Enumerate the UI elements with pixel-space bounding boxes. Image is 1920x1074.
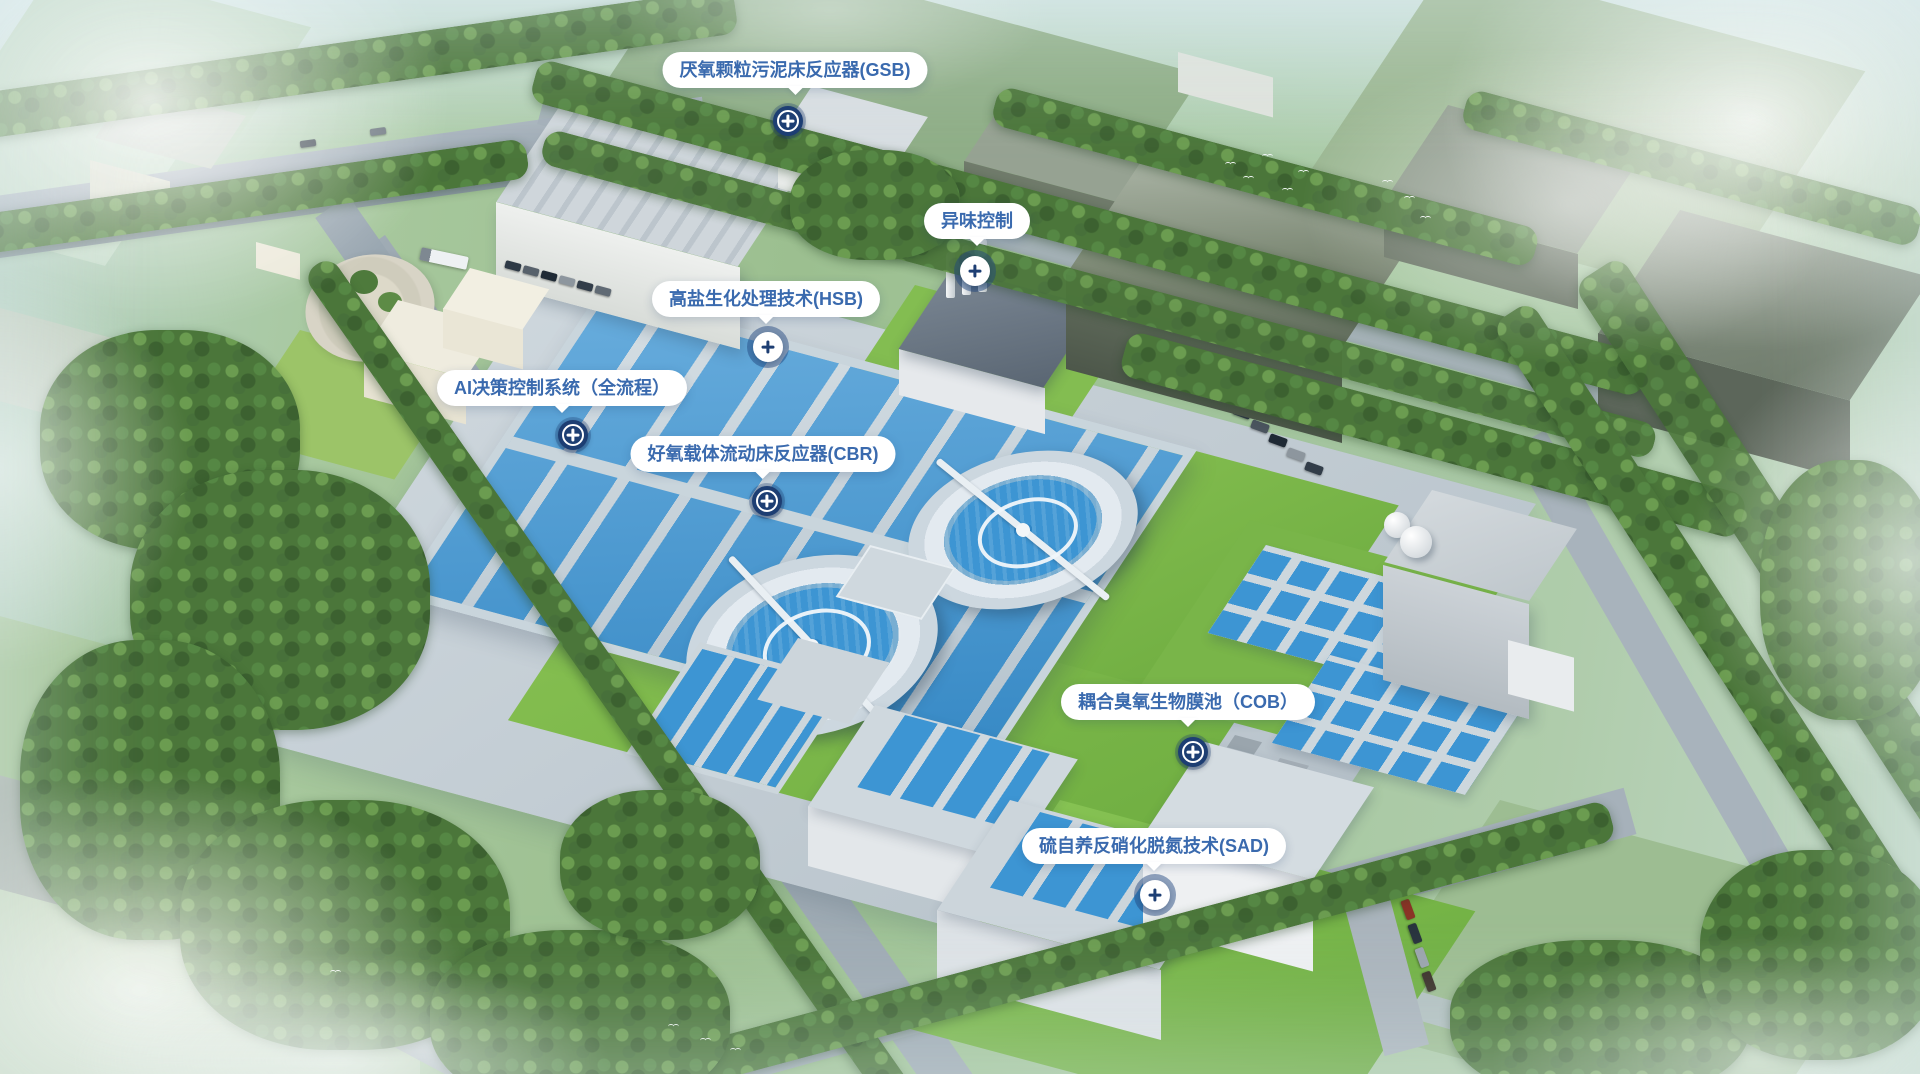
plus-marker-odor[interactable] [960, 256, 990, 286]
plus-icon [787, 115, 790, 128]
callout-gsb: 厌氧颗粒污泥床反应器(GSB) [663, 52, 928, 95]
plus-icon [572, 429, 575, 442]
plus-marker-cbr[interactable] [752, 486, 782, 516]
label-pill-cbr[interactable]: 好氧载体流动床反应器(CBR) [631, 436, 896, 472]
label-pill-odor[interactable]: 异味控制 [924, 203, 1030, 239]
label-pill-hsb[interactable]: 高盐生化处理技术(HSB) [652, 281, 880, 317]
label-pill-ai[interactable]: AI决策控制系统（全流程） [437, 370, 687, 406]
pill-pointer [1179, 718, 1197, 727]
plus-marker-cob[interactable] [1178, 737, 1208, 767]
label-pill-gsb[interactable]: 厌氧颗粒污泥床反应器(GSB) [663, 52, 928, 88]
pill-pointer [553, 404, 571, 413]
plus-icon [766, 495, 769, 508]
callout-cbr: 好氧载体流动床反应器(CBR) [631, 436, 896, 479]
label-pill-cob[interactable]: 耦合臭氧生物膜池（COB） [1061, 684, 1315, 720]
callout-layer: 厌氧颗粒污泥床反应器(GSB)异味控制高盐生化处理技术(HSB)AI决策控制系统… [0, 0, 1920, 1074]
pill-pointer [757, 315, 775, 324]
plant-aerial-view: 厌氧颗粒污泥床反应器(GSB)异味控制高盐生化处理技术(HSB)AI决策控制系统… [0, 0, 1920, 1074]
plus-icon [1154, 889, 1157, 902]
pill-pointer [968, 237, 986, 246]
pill-pointer [1145, 862, 1163, 871]
plus-marker-hsb[interactable] [753, 332, 783, 362]
plus-marker-gsb[interactable] [773, 106, 803, 136]
label-pill-sad[interactable]: 硫自养反硝化脱氮技术(SAD) [1022, 828, 1286, 864]
callout-hsb: 高盐生化处理技术(HSB) [652, 281, 880, 324]
plus-marker-ai[interactable] [558, 420, 588, 450]
plus-icon [1192, 746, 1195, 759]
pill-pointer [754, 470, 772, 479]
callout-sad: 硫自养反硝化脱氮技术(SAD) [1022, 828, 1286, 871]
plus-marker-sad[interactable] [1140, 880, 1170, 910]
pill-pointer [786, 86, 804, 95]
plus-icon [767, 341, 770, 354]
callout-cob: 耦合臭氧生物膜池（COB） [1061, 684, 1315, 727]
plus-icon [974, 265, 977, 278]
callout-odor: 异味控制 [924, 203, 1030, 246]
callout-ai: AI决策控制系统（全流程） [437, 370, 687, 413]
